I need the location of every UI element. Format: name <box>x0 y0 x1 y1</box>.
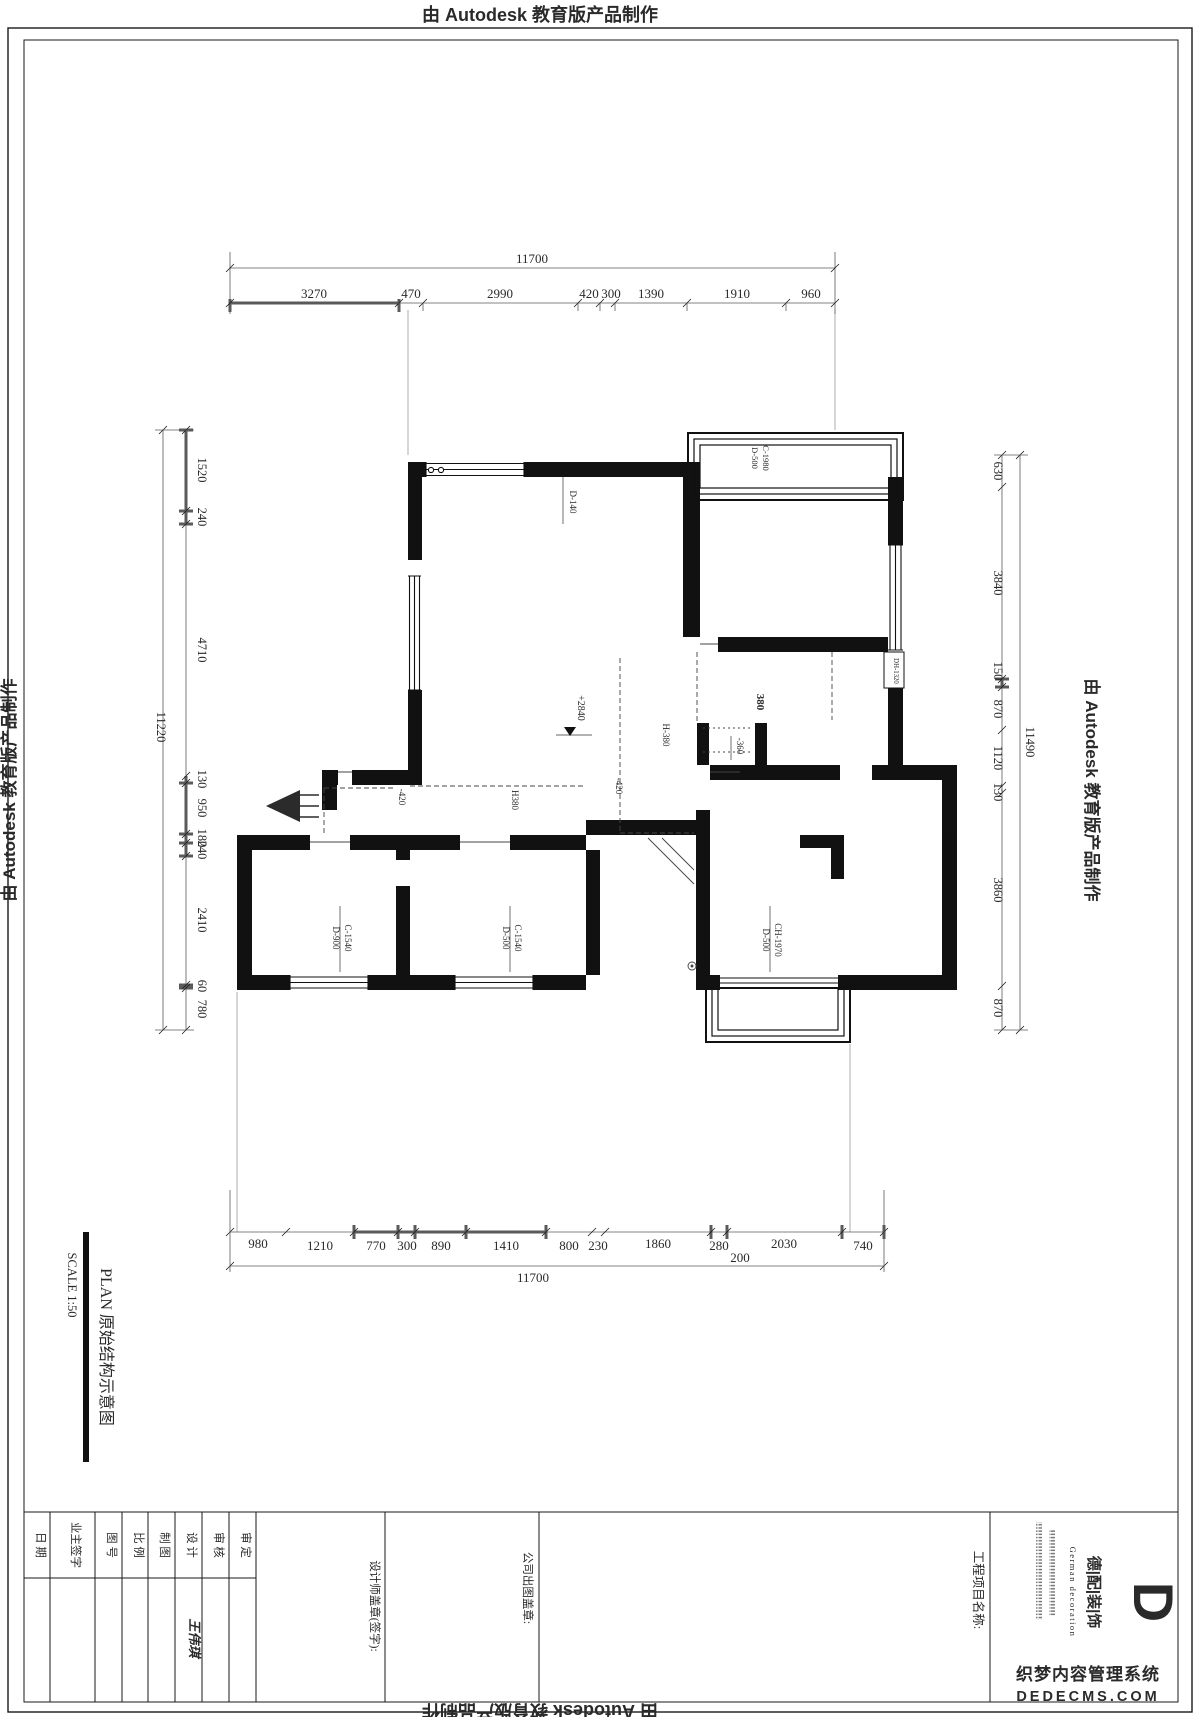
dim-label: 3840 <box>991 571 1005 596</box>
dim-label: 240 <box>195 508 209 527</box>
field-label-drafter: 制 图 <box>158 1532 171 1558</box>
plan-label: H380 <box>510 790 520 810</box>
plan-label: C-1540 <box>343 925 353 953</box>
project-name-label: 工程项目名称: <box>971 1551 986 1629</box>
plan-label: D-900 <box>331 927 341 950</box>
dim-label: 1410 <box>493 1238 519 1253</box>
field-label-owner-sign: 业主签字 <box>69 1522 83 1568</box>
dim-label: 150 <box>991 662 1005 681</box>
plan-label: D-140 <box>568 491 578 514</box>
plan-title: PLAN 原始结构示意图 <box>97 1268 116 1426</box>
dim-label: 4710 <box>195 638 209 663</box>
plan-label: C-1980 <box>761 445 771 471</box>
designer-stamp-label: 设计师盖章(签字): <box>368 1560 382 1651</box>
dim-label: 740 <box>853 1238 873 1253</box>
plan-label: D-500 <box>750 447 760 469</box>
plan-windows <box>290 462 957 990</box>
dim-label: 1520 <box>195 458 209 483</box>
scale-label: SCALE 1:50 <box>65 1253 79 1318</box>
dim-label: 420 <box>579 286 599 301</box>
logo-block: German decoration 德|配|装|饰 D <box>1036 1522 1185 1637</box>
dim-bottom-overall: 11700 <box>517 1270 549 1285</box>
dim-label: 3270 <box>301 286 327 301</box>
dim-label: 960 <box>801 286 821 301</box>
dim-top-labels: 11700 3270 470 2990 420 300 1390 1910 96… <box>301 251 821 301</box>
dim-label: 130 <box>195 770 209 789</box>
plan-label: C-1540 <box>513 925 523 953</box>
logo-address-microtext <box>1049 1530 1055 1616</box>
watermark: 织梦内容管理系统 DEDECMS.COM <box>1016 1664 1160 1705</box>
bay-window-bottom <box>706 988 850 1042</box>
plan-label: CH-1970 <box>773 923 783 957</box>
dim-label: 1390 <box>638 286 664 301</box>
dim-label: 980 <box>248 1236 268 1251</box>
dim-right-labels: 630 3840 150 870 1120 130 3860 870 11490 <box>991 462 1037 1018</box>
dim-left-overall: 11220 <box>154 712 168 743</box>
edge-banner-left: 由 Autodesk 教育版产品制作 <box>0 679 19 902</box>
plan-label: -360 <box>735 738 745 755</box>
plan-detail-lines <box>310 644 832 970</box>
sheet-title: PLAN 原始结构示意图 SCALE 1:50 <box>65 1232 116 1462</box>
field-label-scale: 比 例 <box>132 1532 146 1558</box>
dim-label: 2990 <box>487 286 513 301</box>
dim-chain-bottom <box>226 992 888 1272</box>
dim-left-labels: 1520 240 4710 130 950 180 240 2410 60 78… <box>154 458 209 1019</box>
dim-label: 1210 <box>307 1238 333 1253</box>
dim-label: 2410 <box>195 908 209 933</box>
dim-label: 240 <box>195 841 209 860</box>
field-label-approver: 审 定 <box>239 1532 253 1558</box>
dim-label: 1120 <box>991 746 1005 771</box>
dim-label: 890 <box>431 1238 451 1253</box>
entry-arrow-icon <box>266 790 319 822</box>
edge-banner-right: 由 Autodesk 教育版产品制作 <box>1082 679 1102 902</box>
dim-label: 280 <box>709 1238 729 1253</box>
dim-label: 780 <box>195 1000 209 1019</box>
dim-label: 870 <box>991 999 1005 1018</box>
logo-mark-icon: D <box>1122 1582 1185 1622</box>
dim-label: 300 <box>601 286 621 301</box>
dim-label: 130 <box>991 783 1005 802</box>
dim-label: 230 <box>588 1238 608 1253</box>
plan-label-bold: 380 <box>754 694 766 711</box>
edge-banner-top: 由 Autodesk 教育版产品制作 <box>422 4 658 25</box>
company-stamp-label: 公司出图盖章: <box>521 1552 535 1624</box>
dim-label: 630 <box>991 462 1005 481</box>
dim-label: 470 <box>401 286 421 301</box>
dim-right-overall: 11490 <box>1023 727 1037 758</box>
logo-subtitle: German decoration <box>1068 1547 1078 1638</box>
dim-bottom-labels: 980 1210 770 300 890 1410 800 230 1860 2… <box>248 1236 873 1285</box>
dim-label: 60 <box>195 980 209 993</box>
plan-label: DH-1320 <box>892 658 899 684</box>
field-label-date: 日 期 <box>34 1532 47 1558</box>
dim-label: 300 <box>397 1238 417 1253</box>
field-label-drawing-no: 图 号 <box>105 1532 118 1558</box>
dim-label: 2030 <box>771 1236 797 1251</box>
watermark-line2: DEDECMS.COM <box>1016 1689 1159 1705</box>
titleblock-labels: 日 期 业主签字 图 号 比 例 制 图 设 计 审 核 审 定 王伟琪 设计师… <box>34 1522 986 1659</box>
edge-banner-bottom: 由 Autodesk 教育版产品制作 <box>422 1701 658 1717</box>
plan-label: -420 <box>397 789 407 806</box>
plan-canvas: 由 Autodesk 教育版产品制作 由 Autodesk 教育版产品制作 由 … <box>0 0 1200 1717</box>
plan-label-level: +2840 <box>575 695 586 721</box>
plan-walls <box>237 462 957 990</box>
field-label-designer: 设 计 <box>185 1532 198 1558</box>
dim-bottom-sub: 200 <box>730 1250 750 1265</box>
bay-window-top <box>688 433 903 500</box>
plan-label: H-380 <box>661 724 671 747</box>
plan-label: -420 <box>614 778 624 795</box>
dim-label: 1910 <box>724 286 750 301</box>
dim-label: 770 <box>366 1238 386 1253</box>
dim-top-overall: 11700 <box>516 251 548 266</box>
logo-brand-name: 德|配|装|饰 <box>1085 1556 1103 1629</box>
plan-label: D-500 <box>761 929 771 952</box>
field-label-checker: 审 核 <box>212 1532 226 1558</box>
watermark-line1: 织梦内容管理系统 <box>1016 1664 1160 1684</box>
logo-address-microtext <box>1036 1522 1042 1620</box>
dim-label: 800 <box>559 1238 579 1253</box>
plan-label: D-500 <box>501 927 511 950</box>
dim-label: 1860 <box>645 1236 671 1251</box>
designer-name-signature: 王伟琪 <box>186 1618 202 1659</box>
dim-chain-right <box>994 451 1028 1034</box>
dim-label: 870 <box>991 700 1005 719</box>
dim-chain-top <box>226 252 839 455</box>
dim-label: 950 <box>195 799 209 818</box>
drawing-sheet: 由 Autodesk 教育版产品制作 由 Autodesk 教育版产品制作 由 … <box>0 0 1200 1717</box>
dim-label: 3860 <box>991 878 1005 903</box>
